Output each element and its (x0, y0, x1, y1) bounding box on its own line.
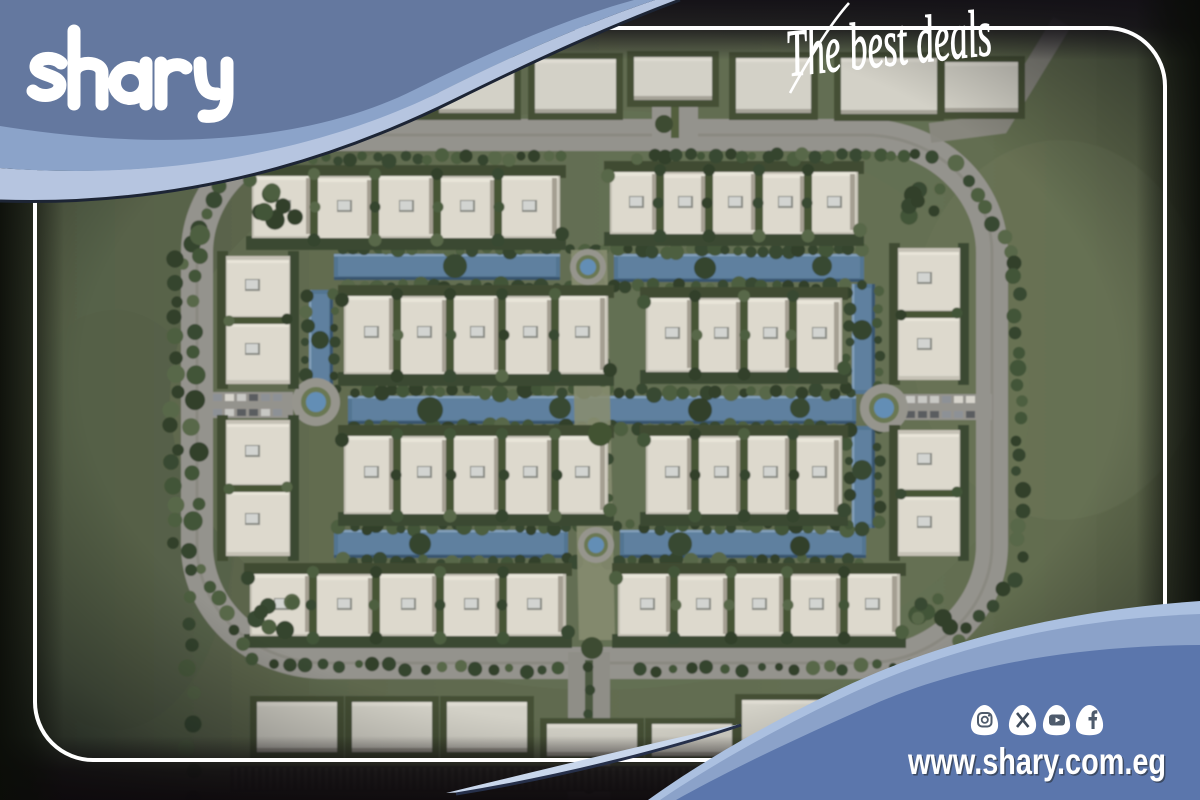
svg-text:www.shary.com.eg: www.shary.com.eg (907, 741, 1166, 782)
